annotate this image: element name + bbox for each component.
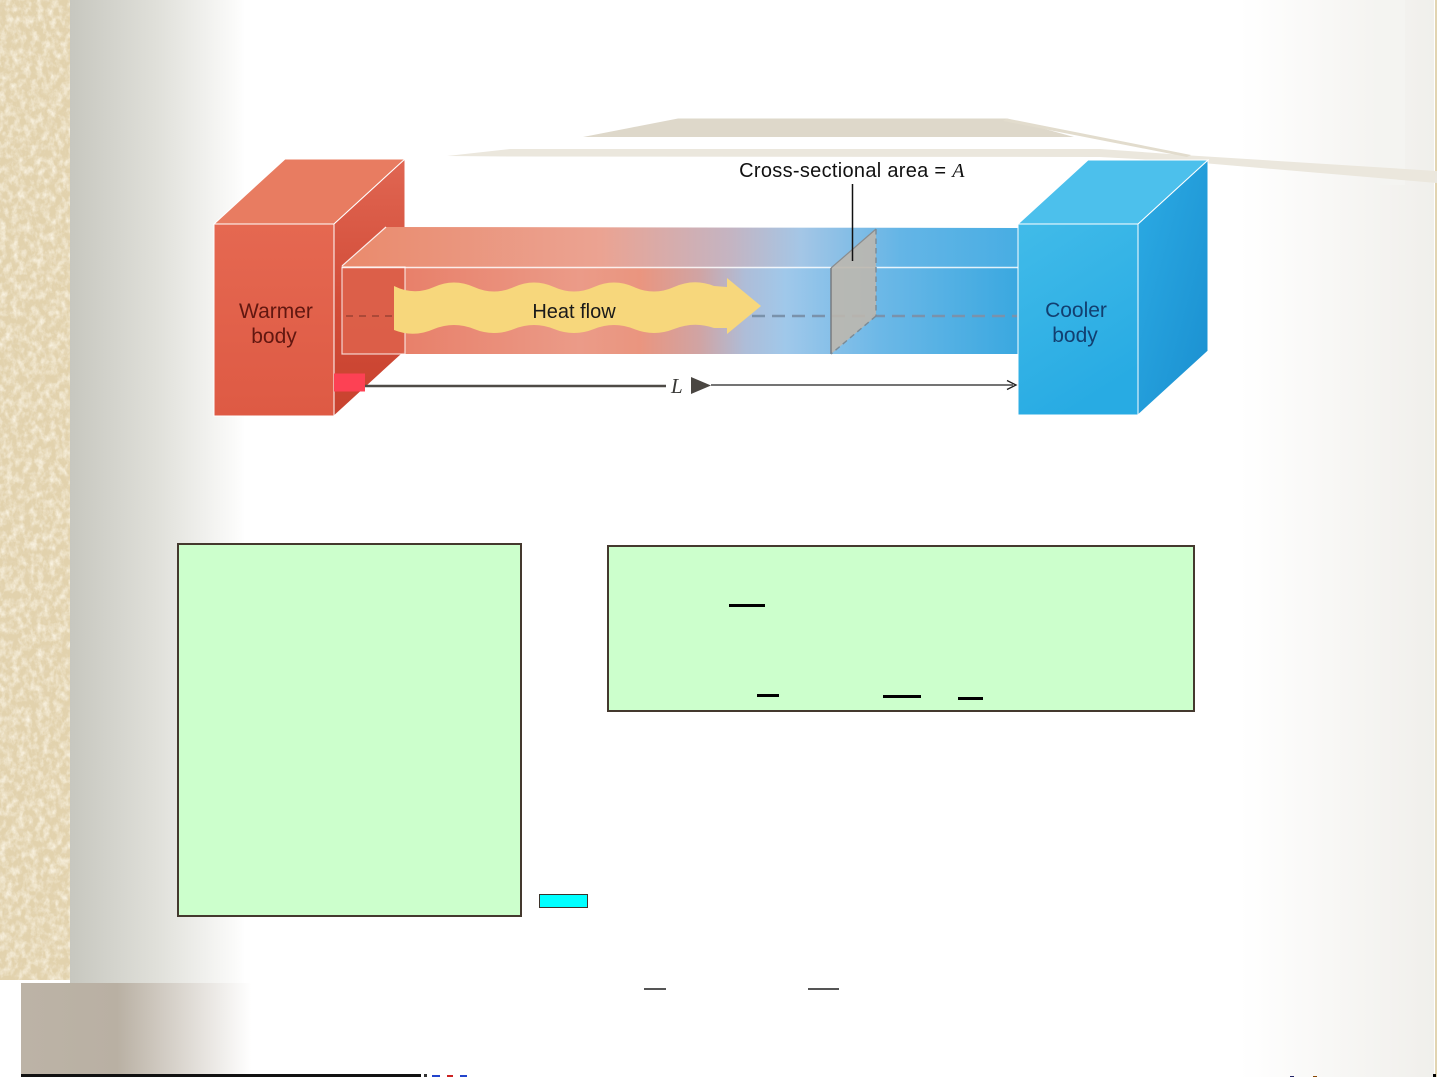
svg-text:Cooler: Cooler	[1045, 299, 1107, 322]
svg-text:L: L	[670, 374, 683, 398]
svg-text:Cross-sectional area = A: Cross-sectional area = A	[739, 160, 965, 182]
svg-text:body: body	[251, 325, 297, 348]
svg-text:Heat flow: Heat flow	[532, 301, 616, 323]
svg-text:Warmer: Warmer	[239, 300, 313, 323]
svg-text:body: body	[1052, 324, 1098, 347]
